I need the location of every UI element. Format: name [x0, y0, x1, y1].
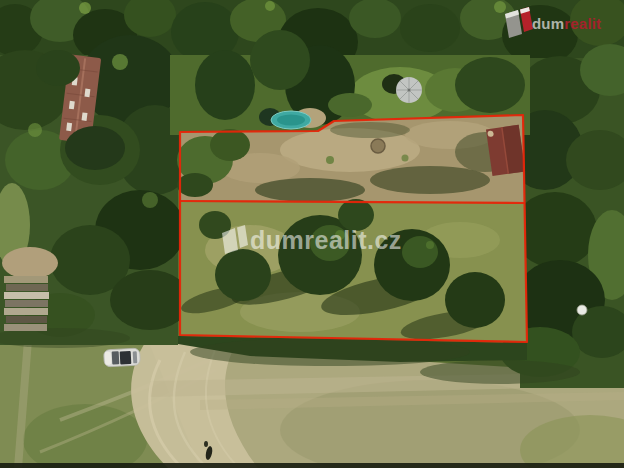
plot-lower-parcel: [179, 199, 527, 345]
parked-car: [104, 348, 141, 367]
logo-text-realit: realit: [564, 15, 601, 32]
canopy-over-house: [65, 126, 125, 170]
aerial-photo: dumrealit.cz dumrealit: [0, 0, 624, 468]
logo-text: dumrealit: [532, 15, 601, 32]
watermark-text: dumrealit.cz: [250, 226, 402, 254]
garden-shed-roof: [486, 125, 525, 176]
logo-text-dum: dum: [532, 15, 564, 32]
white-dish: [577, 305, 587, 315]
photo-bottom-edge: [0, 463, 624, 468]
well-ring: [371, 139, 385, 153]
canopy-over-house-top: [36, 50, 80, 86]
